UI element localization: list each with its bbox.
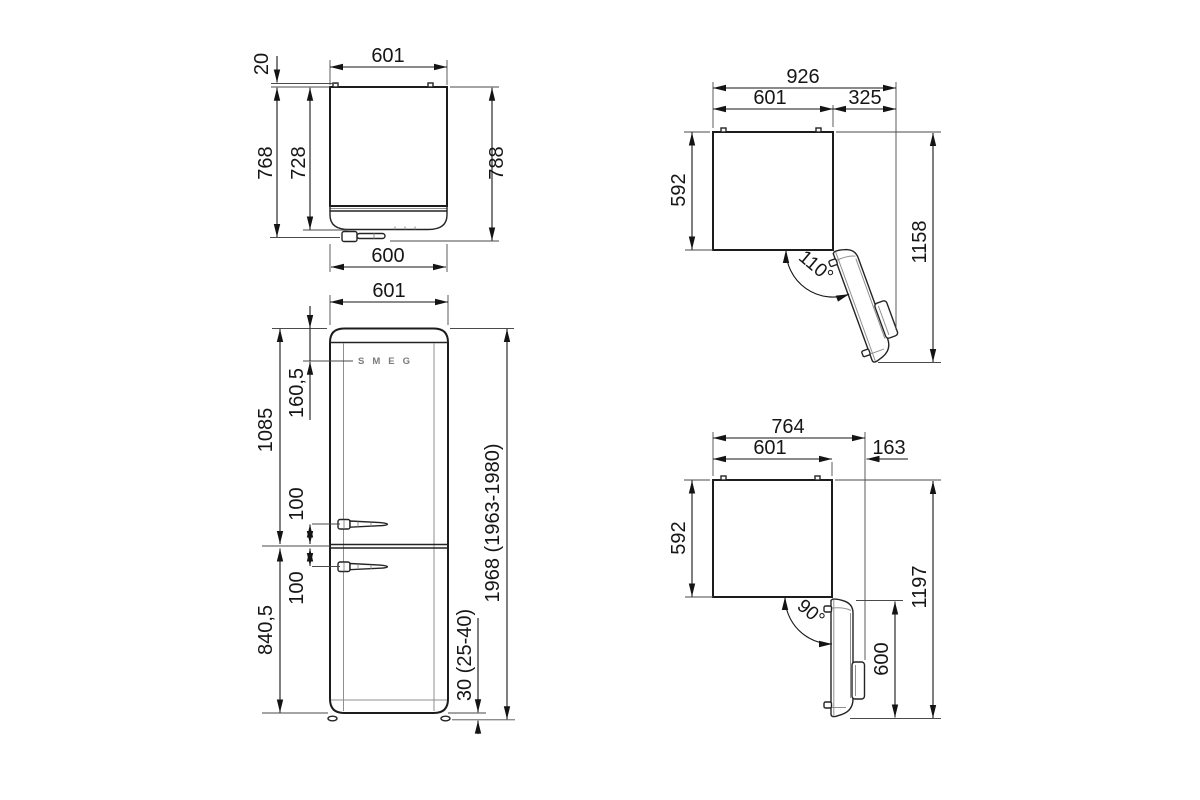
dim-label-open90-overall-depth: 1197 bbox=[909, 565, 931, 608]
dim-open90-depth-592: 592 bbox=[668, 480, 710, 597]
open110-cabinet-body bbox=[685, 128, 833, 250]
dim-label-open90-body-width: 601 bbox=[753, 437, 786, 459]
dim-label-lower-handle-offset: 100 bbox=[286, 571, 308, 604]
refrigerator-dimension-drawing: 601 20 768 728 788 600 bbox=[0, 0, 1200, 800]
foot-left bbox=[328, 716, 337, 721]
dim-open110-depth-592: 592 bbox=[668, 132, 710, 250]
brand-logo: SMEG bbox=[358, 356, 418, 367]
open90-swing-arc: 90° bbox=[785, 596, 832, 644]
dim-label-open110-body-width: 601 bbox=[753, 87, 786, 109]
dim-label-open90-door-overhang: 163 bbox=[872, 437, 905, 459]
open110-door bbox=[826, 241, 904, 365]
dim-label-open90-depth: 592 bbox=[668, 521, 690, 554]
dim-open90-door-width-600: 600 bbox=[850, 601, 941, 719]
dim-label-open110-overall-depth: 1158 bbox=[909, 220, 931, 263]
open90-hinge-pin-bottom bbox=[824, 702, 832, 708]
dim-label-depth-with-handle: 788 bbox=[486, 146, 508, 179]
view-door-open-90: 90° 764 601 163 592 600 bbox=[668, 416, 941, 719]
open90-door bbox=[824, 599, 865, 717]
dim-label-open90-door-width: 600 bbox=[871, 642, 893, 675]
dim-label-open110-depth: 592 bbox=[668, 173, 690, 206]
dim-open110-door-overhang-325: 325 bbox=[833, 87, 896, 109]
open90-door-handle bbox=[852, 662, 865, 699]
dim-label-total-height: 1968 (1963-1980) bbox=[482, 443, 504, 602]
dim-plan-rear-clearance-20: 20 bbox=[251, 53, 338, 87]
dim-plan-width-601: 601 bbox=[330, 45, 447, 85]
dim-label-depth-with-door: 768 bbox=[255, 146, 277, 179]
dim-front-feet-height: 30 (25-40) bbox=[448, 609, 515, 734]
dim-label-depth-body: 728 bbox=[288, 146, 310, 179]
dimension-drawing-page: 601 20 768 728 788 600 bbox=[0, 0, 1200, 800]
plan-cabinet-body bbox=[330, 83, 447, 211]
dim-front-width-601: 601 bbox=[330, 280, 448, 325]
view-door-open-110: 110° 926 601 325 592 1158 bbox=[668, 66, 941, 365]
open90-cabinet-body bbox=[685, 476, 832, 597]
dim-open90-door-overhang-163: 163 bbox=[867, 437, 909, 459]
view-top-plan: 601 20 768 728 788 600 bbox=[251, 45, 508, 272]
foot-right bbox=[441, 716, 450, 721]
dim-label-upper-handle-offset: 100 bbox=[286, 487, 308, 520]
open110-hinge-pin-bottom bbox=[861, 349, 870, 357]
dim-label-front-width: 601 bbox=[372, 280, 405, 302]
rear-spacer-right bbox=[428, 83, 433, 87]
dim-label-rear-clearance: 20 bbox=[251, 53, 273, 75]
dim-label-logo-offset: 160,5 bbox=[286, 368, 308, 418]
dim-label-upper-section: 1085 bbox=[255, 408, 277, 453]
dim-label-lower-section: 840,5 bbox=[255, 605, 277, 655]
dim-label-open90-angle: 90° bbox=[793, 596, 829, 631]
dim-label-plan-width: 601 bbox=[371, 45, 404, 67]
view-front: SMEG 601 160,5 bbox=[255, 280, 515, 734]
dim-plan-door-width-600: 600 bbox=[330, 244, 447, 272]
dim-label-open110-overall-width: 926 bbox=[786, 66, 819, 88]
dim-label-open90-overall-width: 764 bbox=[771, 416, 804, 438]
dim-open110-body-width-601: 601 bbox=[713, 87, 833, 127]
dim-label-plan-door-width: 600 bbox=[371, 245, 404, 267]
plan-door-handle bbox=[342, 232, 385, 242]
dim-label-open110-door-overhang: 325 bbox=[848, 87, 881, 109]
dim-label-feet-height: 30 (25-40) bbox=[454, 609, 476, 701]
dim-open90-body-width-601: 601 bbox=[713, 437, 832, 476]
dim-label-open110-angle: 110° bbox=[794, 247, 837, 287]
